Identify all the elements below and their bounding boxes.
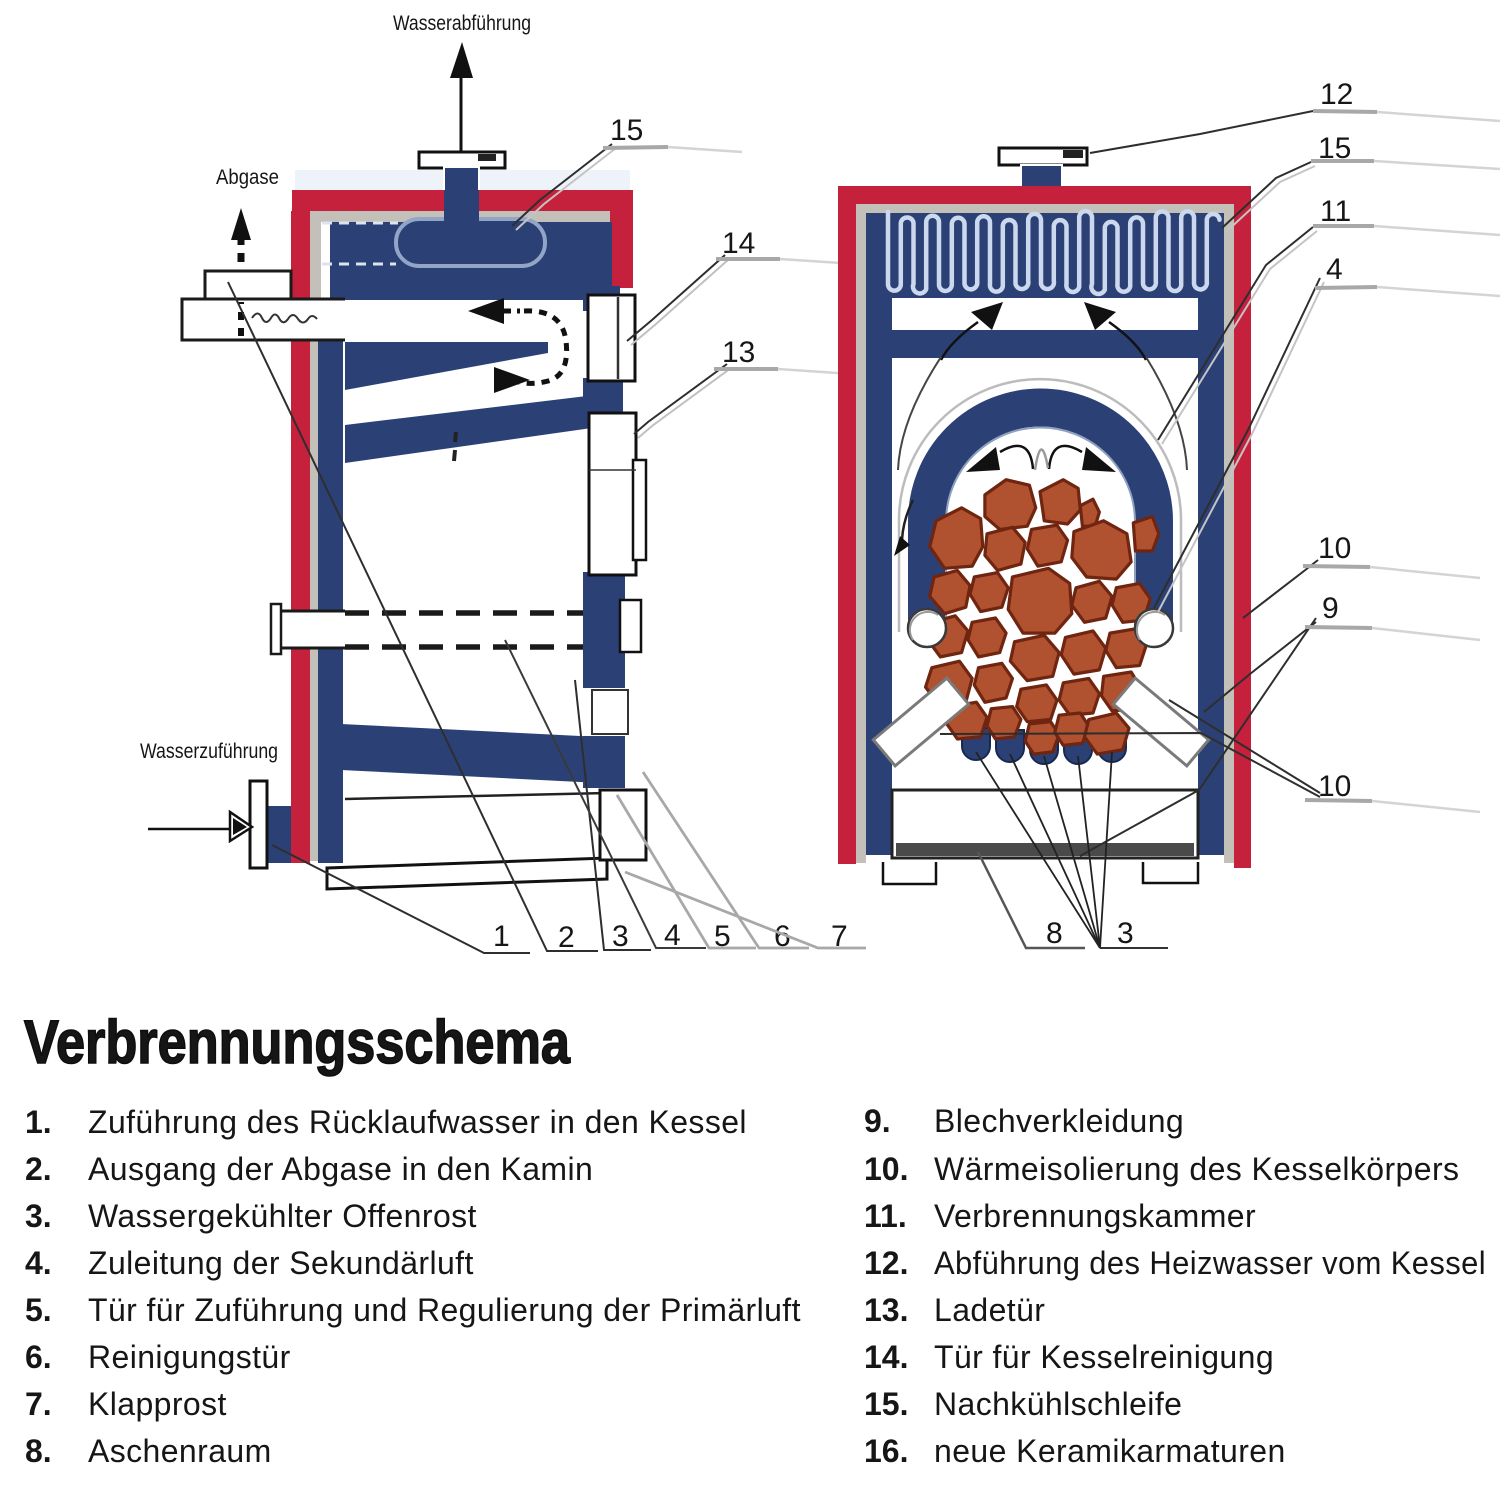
svg-text:12.: 12. [864,1245,908,1281]
svg-text:15: 15 [610,114,643,147]
svg-text:9: 9 [1322,592,1339,625]
svg-text:Abführung des Heizwasser vom K: Abführung des Heizwasser vom Kessel [934,1245,1486,1281]
svg-text:8.: 8. [25,1433,52,1469]
svg-text:7.: 7. [25,1386,52,1422]
svg-text:5.: 5. [25,1292,52,1328]
svg-text:10: 10 [1318,532,1351,565]
svg-text:3: 3 [612,920,629,953]
svg-text:13: 13 [722,336,755,369]
svg-text:7: 7 [831,920,848,953]
svg-text:Wassergekühlter Offenrost: Wassergekühlter Offenrost [88,1198,477,1234]
svg-text:2.: 2. [25,1151,52,1187]
svg-text:14: 14 [722,227,755,260]
svg-text:3: 3 [1117,917,1134,950]
svg-text:15.: 15. [864,1386,908,1422]
svg-text:Abgase: Abgase [216,166,279,189]
svg-text:12: 12 [1320,78,1353,111]
svg-text:1.: 1. [25,1104,52,1140]
svg-text:6.: 6. [25,1339,52,1375]
svg-text:10: 10 [1318,770,1351,803]
svg-text:Ausgang der Abgase in den Kami: Ausgang der Abgase in den Kamin [88,1151,593,1187]
svg-text:4.: 4. [25,1245,52,1281]
svg-text:3.: 3. [25,1198,52,1234]
svg-text:Zuleitung der Sekundärluft: Zuleitung der Sekundärluft [88,1245,474,1281]
svg-text:Reinigungstür: Reinigungstür [88,1339,291,1375]
svg-text:neue Keramikarmaturen: neue Keramikarmaturen [934,1433,1286,1469]
svg-text:Nachkühlschleife: Nachkühlschleife [934,1386,1182,1422]
svg-text:Klapprost: Klapprost [88,1386,227,1422]
svg-text:Wasserabführung: Wasserabführung [393,12,531,35]
svg-text:Verbrennungsschema: Verbrennungsschema [24,1008,571,1076]
svg-text:8: 8 [1046,917,1063,950]
svg-text:4: 4 [664,919,681,952]
svg-text:10.: 10. [864,1151,908,1187]
svg-text:Ladetür: Ladetür [934,1292,1045,1328]
svg-text:16.: 16. [864,1433,908,1469]
svg-text:Zuführung des Rücklaufwasser i: Zuführung des Rücklaufwasser in den Kess… [88,1104,747,1140]
svg-text:Wasserzuführung: Wasserzuführung [140,740,278,763]
svg-text:4: 4 [1326,253,1343,286]
svg-text:14.: 14. [864,1339,908,1375]
svg-text:9.: 9. [864,1103,891,1139]
svg-text:2: 2 [558,921,575,954]
svg-text:Verbrennungskammer: Verbrennungskammer [934,1198,1256,1234]
svg-text:Blechverkleidung: Blechverkleidung [934,1103,1184,1139]
svg-text:Tür für Kesselreinigung: Tür für Kesselreinigung [934,1339,1274,1375]
svg-text:13.: 13. [864,1292,908,1328]
svg-text:Wärmeisolierung des Kesselkörp: Wärmeisolierung des Kesselkörpers [934,1151,1459,1187]
svg-text:5: 5 [714,920,731,953]
svg-text:Aschenraum: Aschenraum [88,1433,272,1469]
svg-text:1: 1 [493,920,510,953]
svg-text:Tür für Zuführung und Regulier: Tür für Zuführung und Regulierung der Pr… [88,1292,801,1328]
svg-text:11: 11 [1320,195,1351,228]
svg-text:15: 15 [1318,132,1351,165]
svg-text:11.: 11. [864,1198,907,1234]
